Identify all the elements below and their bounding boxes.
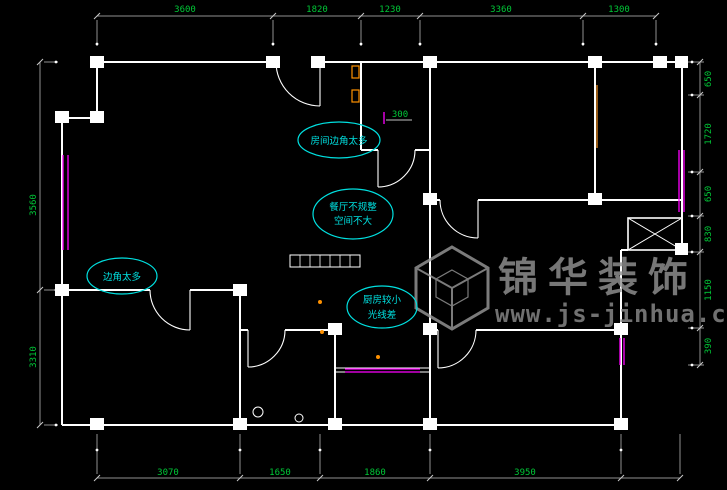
knob-dot	[320, 330, 324, 334]
sink-fixture	[295, 414, 303, 422]
annotation-text: 光线差	[368, 309, 397, 321]
dim-right-5: 1150	[704, 279, 714, 301]
dim-right-2: 1720	[704, 123, 714, 145]
cad-canvas: 锦华装饰 www.js-jinhua.com 房间边角太多 餐厅不规整 空间不大…	[0, 0, 727, 490]
dim-left-1: 3560	[29, 194, 39, 216]
bar-counter	[290, 255, 360, 267]
knob-dot	[376, 355, 380, 359]
annotation-bubble-corners: 边角太多	[87, 258, 157, 294]
entry-door	[276, 62, 320, 106]
floor-plan-drawing: 锦华装饰 www.js-jinhua.com 房间边角太多 餐厅不规整 空间不大…	[0, 0, 727, 490]
bedroom-left-door	[150, 290, 190, 330]
isometric-cube-logo-icon	[416, 247, 488, 329]
dim-bottom-2: 1650	[269, 468, 291, 478]
dim-right-6: 390	[704, 338, 714, 354]
annotation-bubble-rooms-corners: 房间边角太多	[298, 122, 380, 158]
watermark-group: 锦华装饰 www.js-jinhua.com	[416, 247, 727, 329]
dim-right-1: 650	[704, 71, 714, 87]
dimension-labels: 3600 1820 1230 3360 1300 3070 1650 1860 …	[29, 5, 714, 478]
left-window	[63, 155, 68, 250]
annotations-layer: 房间边角太多 餐厅不规整 空间不大 边角太多 厨房较小 光线差	[87, 122, 417, 328]
annotation-text: 边角太多	[103, 271, 141, 283]
doors-layer	[150, 62, 478, 368]
annotation-bubble-kitchen: 厨房较小 光线差	[347, 286, 417, 328]
balcony-window	[345, 369, 420, 372]
watermark-brand: 锦华装饰	[498, 255, 698, 301]
dim-inline-300: 300	[392, 110, 408, 120]
dim-top-2: 1820	[306, 5, 328, 15]
dimension-ticks	[37, 13, 703, 481]
door-frame-accent	[352, 66, 359, 78]
dim-top-5: 1300	[608, 5, 630, 15]
bath-top-door	[378, 150, 415, 187]
toilet-fixture	[253, 407, 263, 417]
dim-top-1: 3600	[174, 5, 196, 15]
dim-top-3: 1230	[379, 5, 401, 15]
walls-layer	[62, 62, 682, 425]
door-frame-accent	[352, 90, 359, 102]
annotation-text: 餐厅不规整	[329, 201, 377, 213]
shaft-x-box	[628, 218, 682, 250]
bath-bottom-door	[248, 330, 285, 367]
dim-right-4: 830	[704, 226, 714, 242]
dim-right-3: 650	[704, 186, 714, 202]
annotation-text: 房间边角太多	[310, 135, 367, 147]
annotation-text: 空间不大	[334, 215, 373, 227]
annotation-text: 厨房较小	[363, 294, 402, 306]
dim-left-2: 3310	[29, 346, 39, 368]
column-blocks	[55, 56, 688, 430]
dim-bottom-3: 1860	[364, 468, 386, 478]
dim-bottom-4: 3950	[514, 468, 536, 478]
fixtures-layer	[253, 66, 597, 422]
watermark-url: www.js-jinhua.com	[495, 300, 727, 328]
annotation-bubble-dining: 餐厅不规整 空间不大	[313, 189, 393, 239]
dimension-lines-layer	[40, 16, 704, 478]
bedroom3-door	[438, 330, 476, 368]
knob-dot	[318, 300, 322, 304]
bedroom2-door	[440, 200, 478, 238]
dim-bottom-1: 3070	[157, 468, 179, 478]
dim-top-4: 3360	[490, 5, 512, 15]
